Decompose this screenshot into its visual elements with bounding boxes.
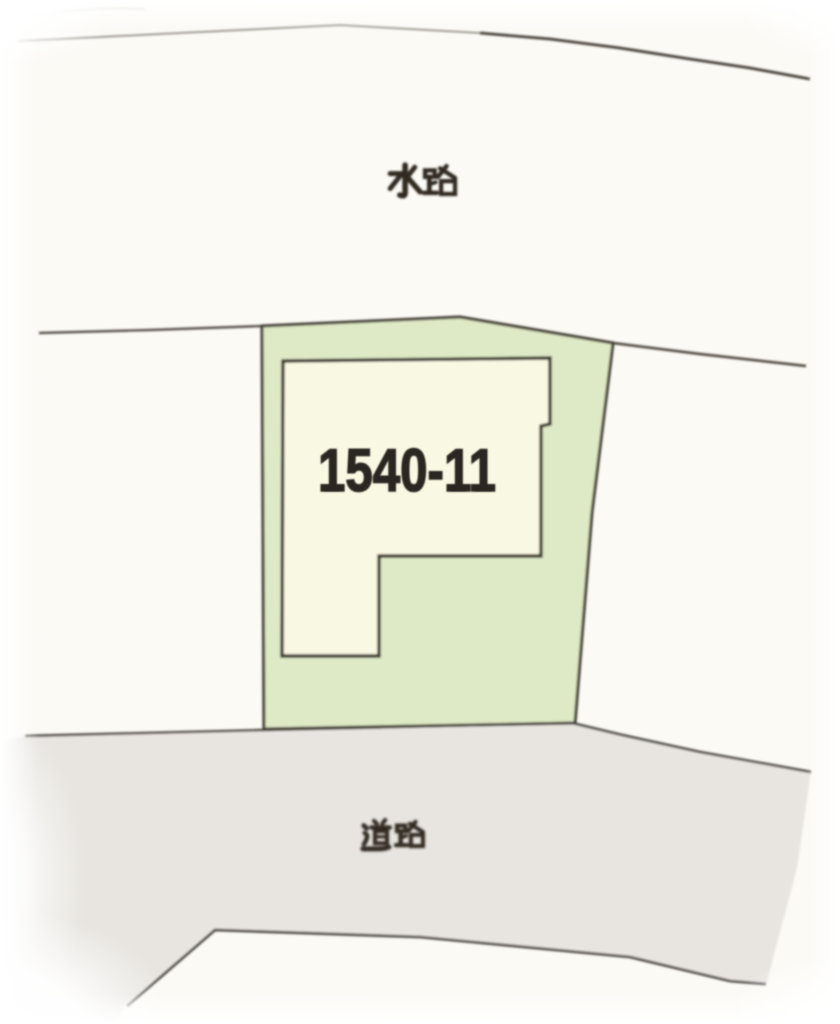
svg-text:1540-11: 1540-11 (318, 437, 496, 504)
